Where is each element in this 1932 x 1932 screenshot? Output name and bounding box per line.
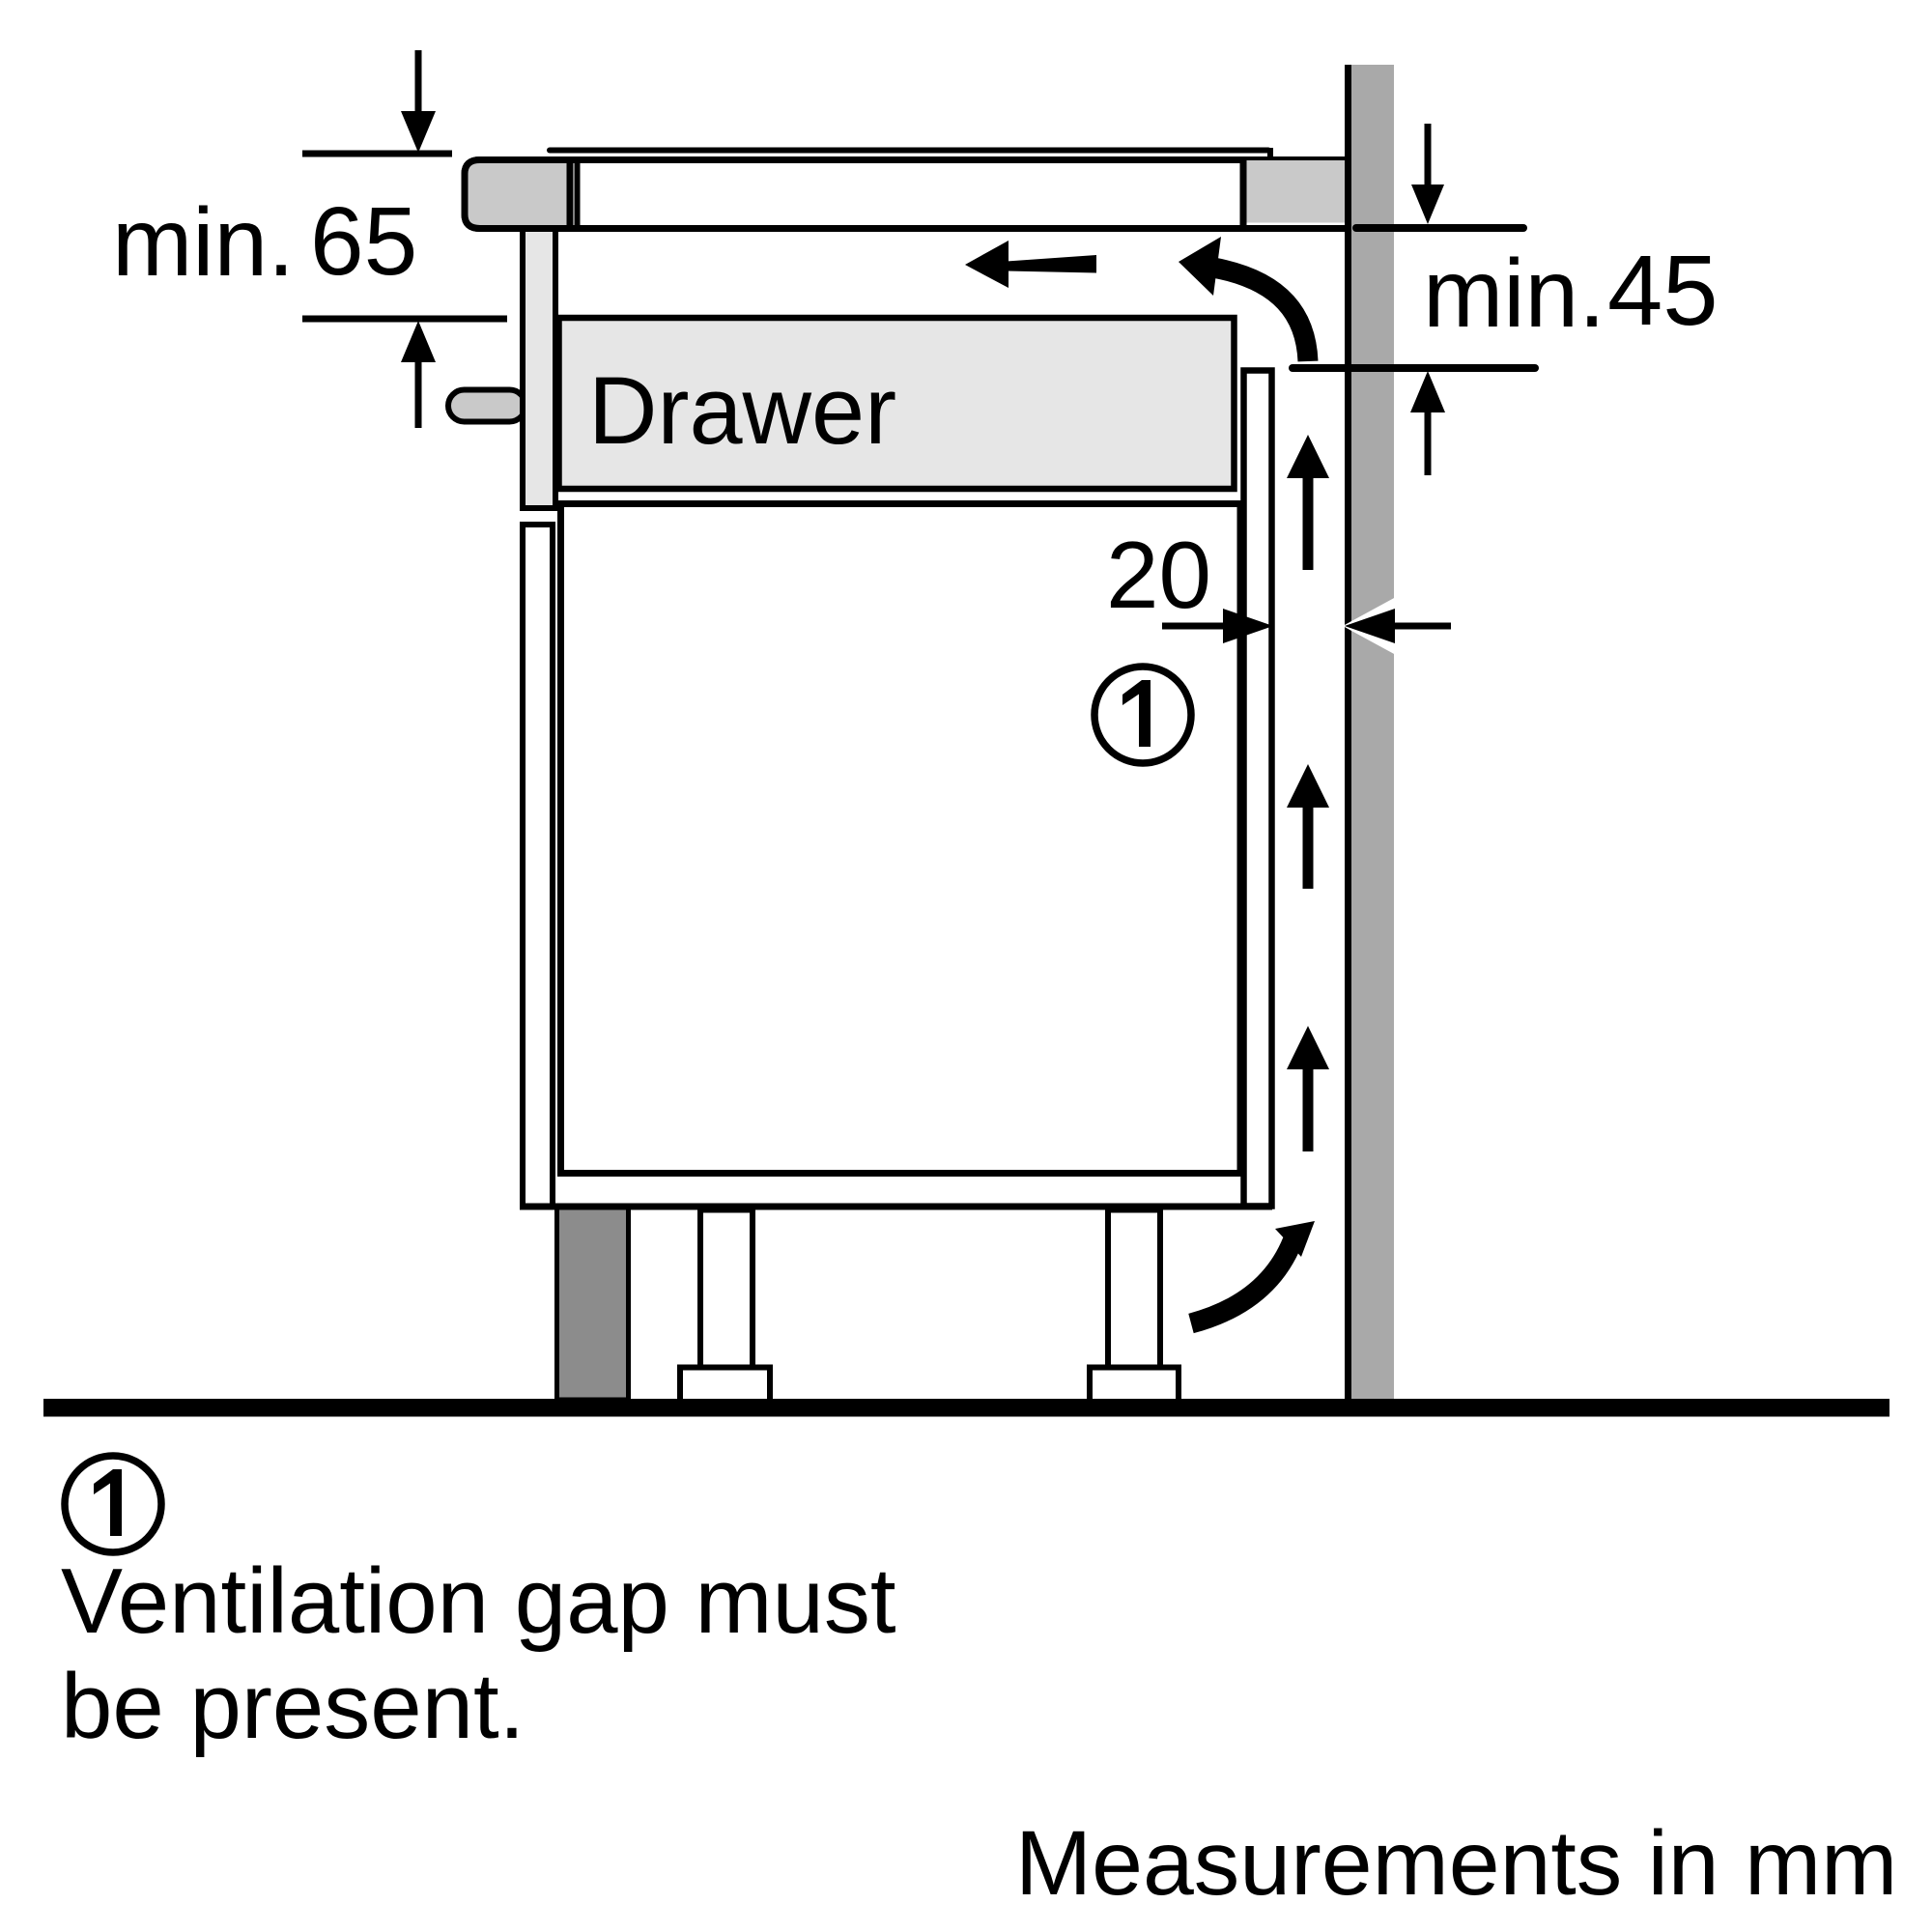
svg-text:65: 65 xyxy=(310,187,417,296)
svg-text:Ventilation gap must: Ventilation gap must xyxy=(61,1549,896,1653)
svg-text:Measurements in mm: Measurements in mm xyxy=(1015,1812,1897,1915)
svg-text:min.: min. xyxy=(1423,240,1605,348)
svg-text:20: 20 xyxy=(1106,522,1211,628)
svg-text:min.: min. xyxy=(112,188,295,297)
svg-text:Drawer: Drawer xyxy=(588,356,896,464)
svg-text:be present.: be present. xyxy=(61,1655,525,1758)
svg-text:45: 45 xyxy=(1607,235,1719,346)
